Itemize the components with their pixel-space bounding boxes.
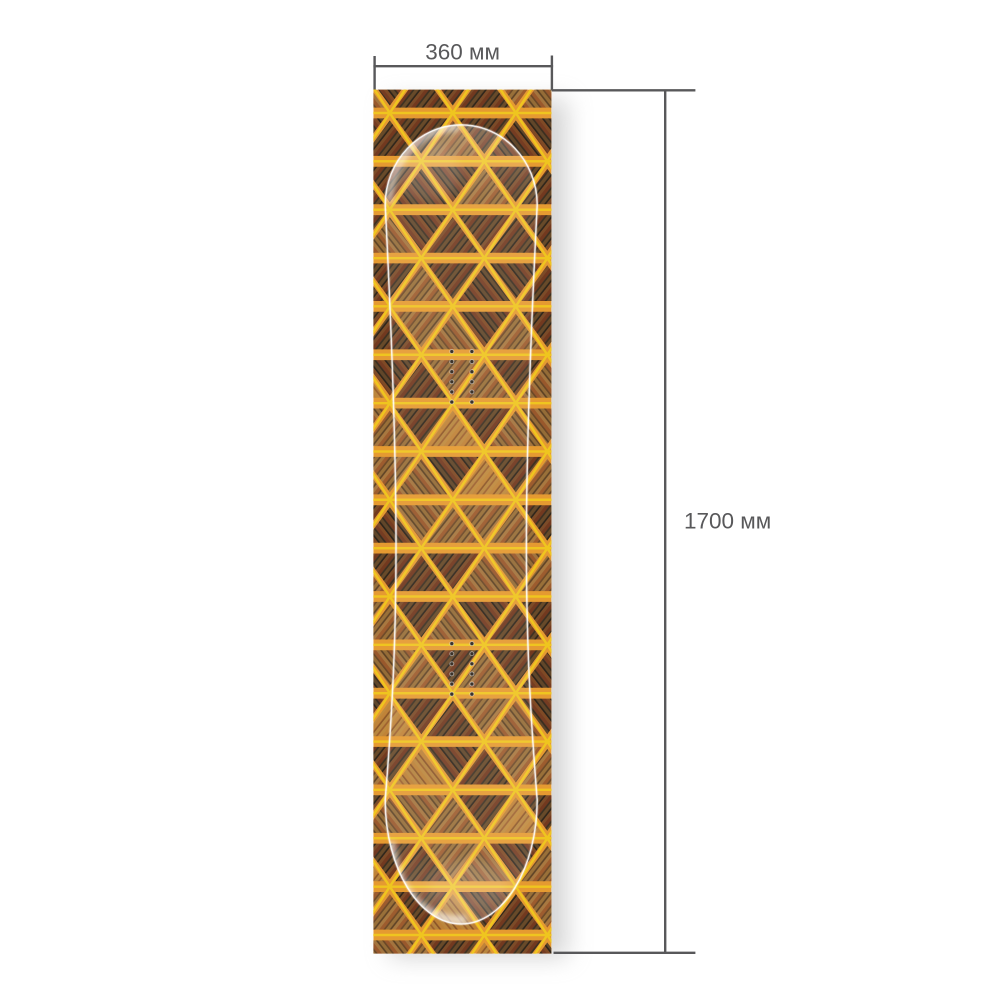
svg-text:360 мм: 360 мм bbox=[425, 39, 500, 64]
svg-text:1700 мм: 1700 мм bbox=[684, 508, 771, 533]
